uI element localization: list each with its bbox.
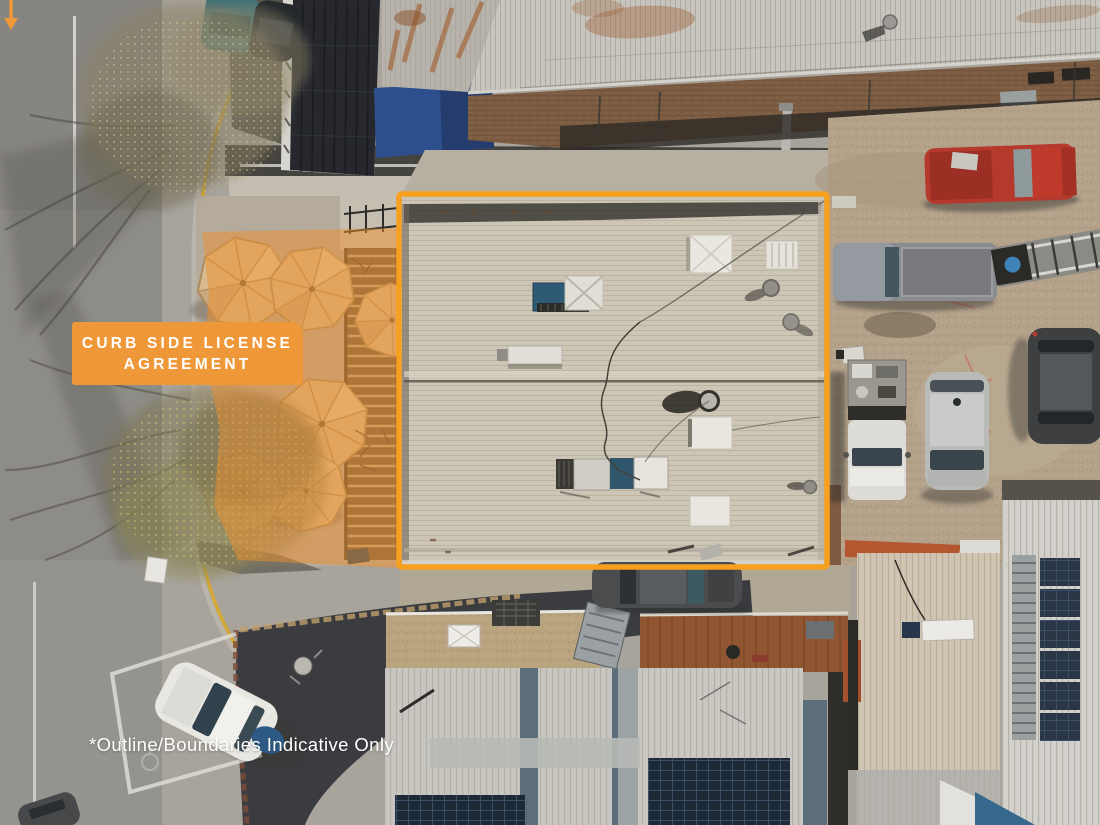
screenshot: CURB SIDE LICENSE AGREEMENT *Outline/Bou…	[0, 0, 1100, 825]
label-line-2: AGREEMENT	[124, 354, 252, 375]
arrow-down-icon	[0, 0, 22, 32]
red-truck	[921, 143, 1079, 214]
concrete-beam	[430, 738, 640, 768]
footpath-sign	[144, 557, 167, 584]
cafe-table	[294, 657, 312, 675]
sign	[922, 619, 975, 641]
curbside-overlay	[202, 228, 400, 568]
vent-box	[806, 621, 834, 639]
roof-vent	[726, 645, 740, 659]
skylight	[686, 235, 732, 273]
disclaimer-text: *Outline/Boundaries Indicative Only	[89, 734, 394, 756]
white-ute	[830, 360, 911, 502]
curbside-license-label: CURB SIDE LICENSE AGREEMENT	[72, 322, 303, 385]
beige-building	[843, 540, 1000, 825]
skylight	[565, 276, 603, 310]
roof-seam	[404, 380, 824, 383]
label-line-1: CURB SIDE LICENSE	[82, 333, 293, 354]
aerial-photo	[0, 0, 1100, 825]
gray-ute	[833, 243, 997, 311]
skylight	[688, 417, 732, 449]
dark-car-right	[1008, 328, 1100, 444]
skylight	[690, 496, 730, 526]
lane-line	[33, 582, 36, 825]
roof-vent	[883, 15, 897, 29]
silver-suv	[921, 372, 993, 504]
roof-unit	[766, 241, 798, 269]
subject-building-roof	[402, 196, 826, 566]
